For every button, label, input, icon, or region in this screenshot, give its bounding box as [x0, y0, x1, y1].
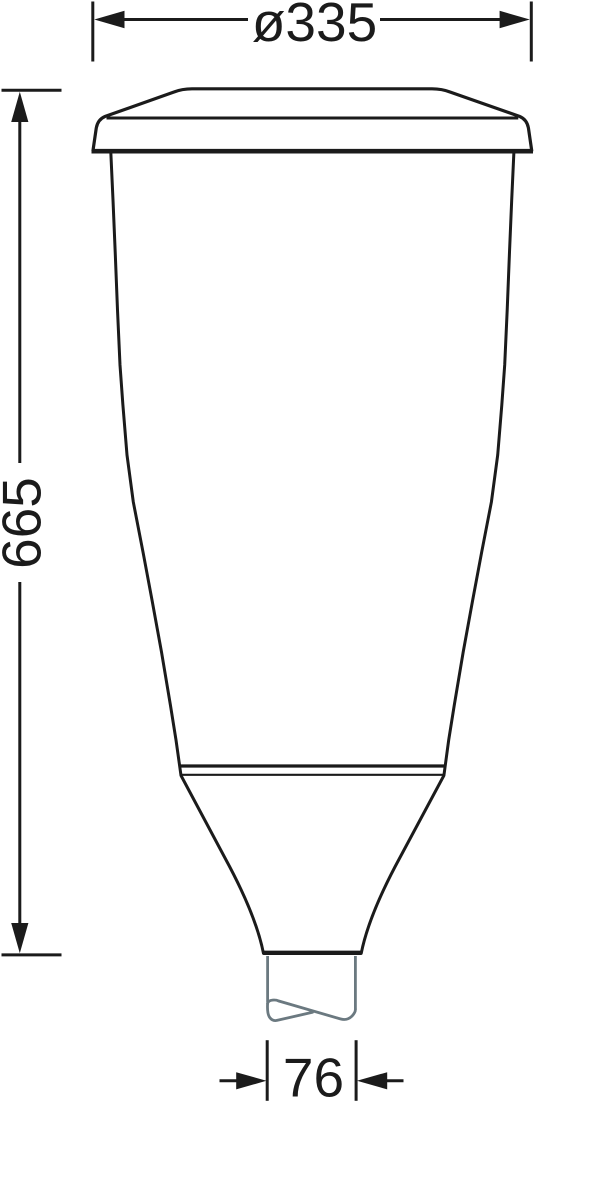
svg-text:665: 665 — [0, 477, 53, 569]
svg-text:76: 76 — [283, 1047, 344, 1109]
svg-text:ø335: ø335 — [252, 0, 377, 53]
